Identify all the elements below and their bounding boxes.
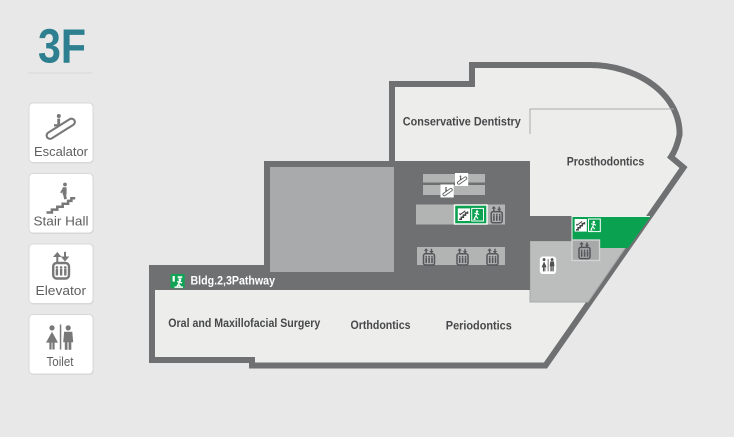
svg-text:Orthdontics: Orthdontics: [351, 318, 411, 332]
svg-text:Stair Hall: Stair Hall: [34, 215, 89, 229]
svg-text:3F: 3F: [38, 21, 86, 74]
svg-text:Toilet: Toilet: [47, 355, 74, 369]
svg-text:Bldg.2,3Pathway: Bldg.2,3Pathway: [191, 274, 276, 288]
svg-text:Conservative Dentistry: Conservative Dentistry: [403, 115, 521, 129]
svg-text:Oral and Maxillofacial Surgery: Oral and Maxillofacial Surgery: [168, 316, 320, 330]
svg-text:Elevator: Elevator: [36, 284, 87, 298]
svg-text:Periodontics: Periodontics: [446, 318, 512, 332]
svg-text:Escalator: Escalator: [34, 145, 88, 159]
svg-text:Prosthodontics: Prosthodontics: [567, 154, 645, 168]
